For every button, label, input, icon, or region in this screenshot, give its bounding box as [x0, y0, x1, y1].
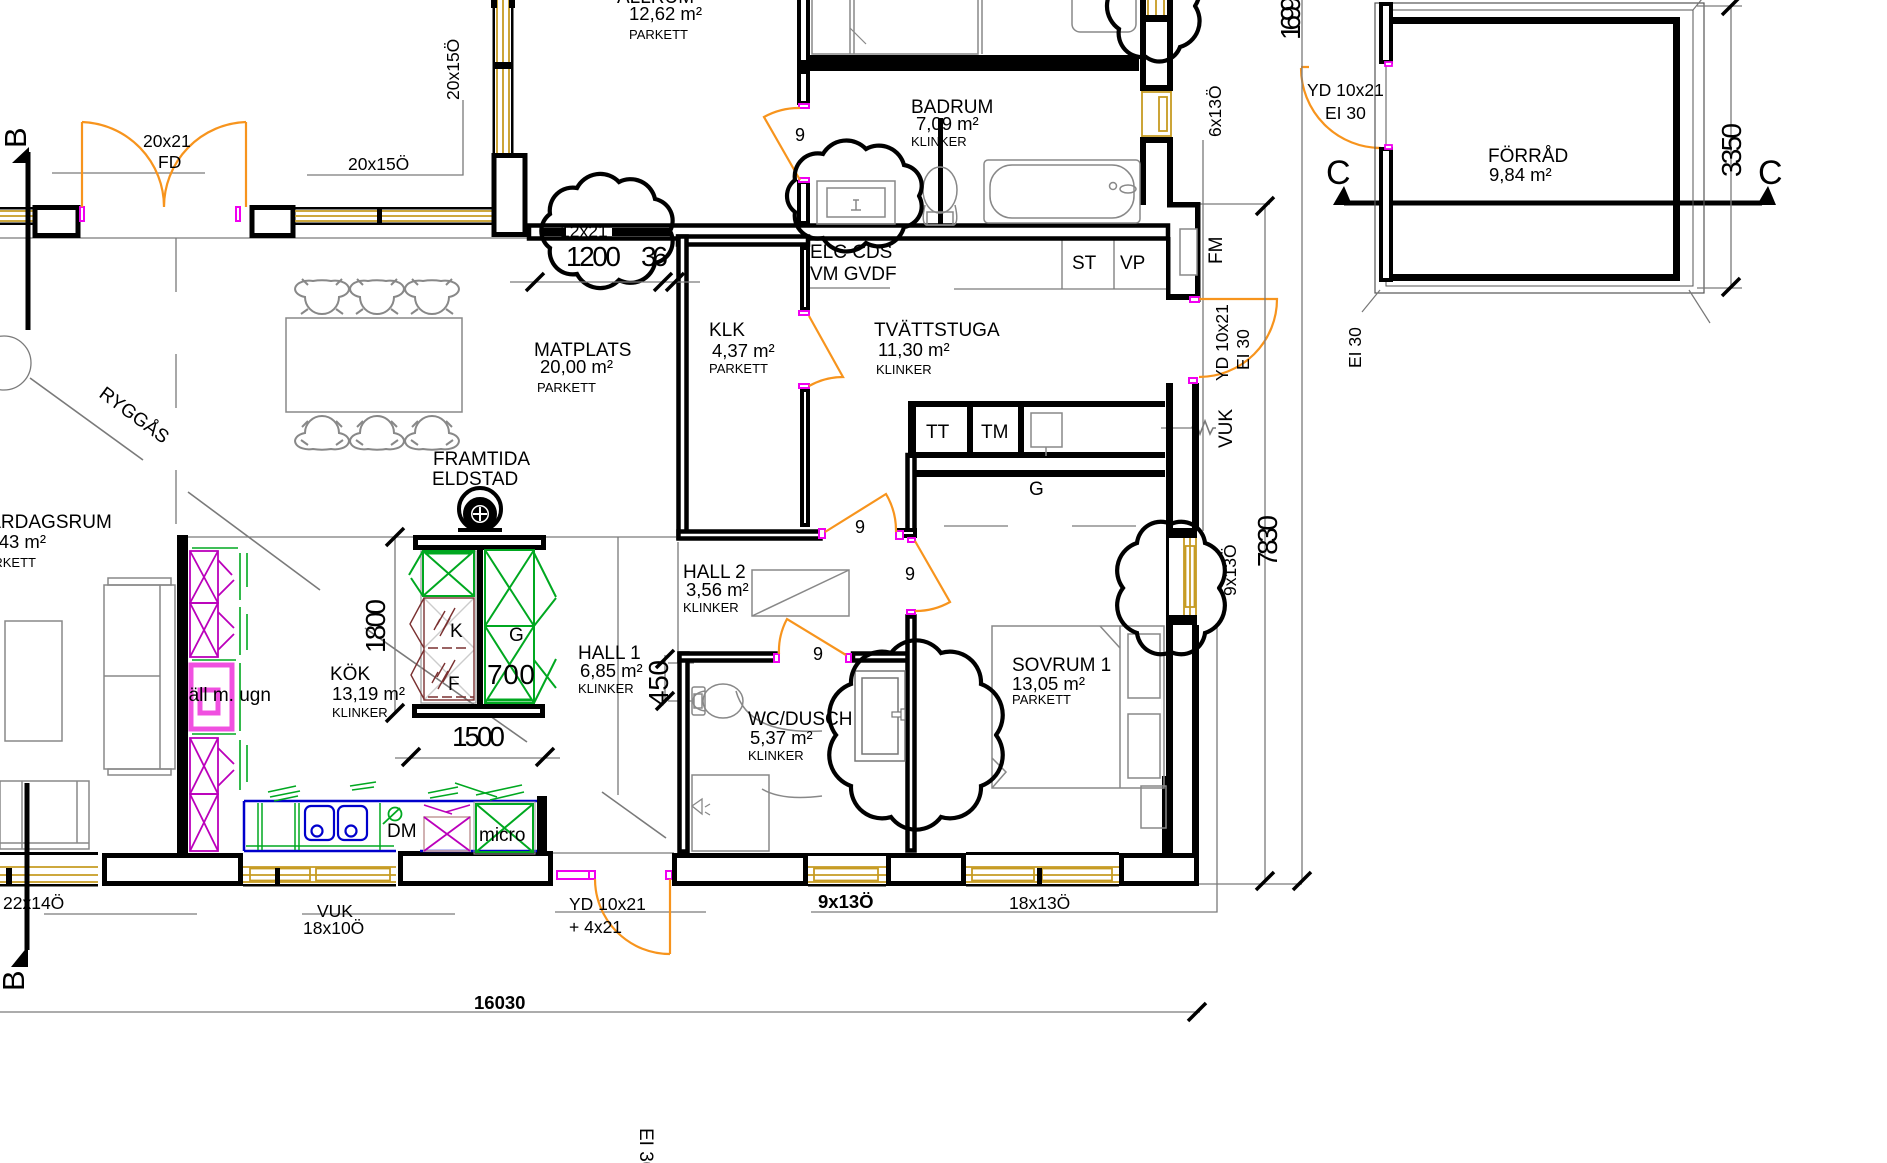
svg-text:11,30 m²: 11,30 m² [878, 339, 950, 360]
svg-text:PARKETT: PARKETT [629, 27, 688, 42]
svg-text:F: F [448, 674, 460, 695]
svg-text:EI 30: EI 30 [635, 1128, 656, 1163]
svg-text:KLINKER: KLINKER [578, 681, 634, 696]
svg-text:9,84 m²: 9,84 m² [1489, 164, 1552, 185]
svg-text:1699: 1699 [1275, 0, 1306, 40]
svg-text:YD 10x21: YD 10x21 [1307, 80, 1384, 100]
svg-text:700: 700 [487, 659, 535, 690]
svg-text:ELC CDS: ELC CDS [810, 242, 892, 263]
svg-text:5,37 m²: 5,37 m² [750, 727, 813, 748]
svg-text:häll m. ugn: häll m. ugn [178, 685, 271, 706]
svg-text:FD: FD [158, 152, 181, 172]
svg-text:G: G [509, 625, 524, 646]
svg-text:YD 10x21: YD 10x21 [569, 894, 646, 914]
svg-text:TM: TM [981, 422, 1008, 443]
svg-text:KÖK: KÖK [330, 664, 370, 685]
svg-text:20,00 m²: 20,00 m² [540, 356, 613, 377]
svg-text:9: 9 [855, 517, 865, 537]
svg-text:ELDSTAD: ELDSTAD [432, 469, 518, 490]
svg-text:+ 4x21: + 4x21 [569, 917, 622, 937]
svg-text:22x14Ö: 22x14Ö [3, 893, 64, 913]
svg-text:DM: DM [387, 821, 417, 842]
svg-text:20x21: 20x21 [143, 131, 191, 151]
svg-text:TT: TT [926, 422, 950, 443]
svg-text:KLINKER: KLINKER [683, 600, 739, 615]
svg-text:PARKETT: PARKETT [0, 555, 36, 570]
svg-text:18x13Ö: 18x13Ö [1009, 893, 1070, 913]
svg-text:1200: 1200 [566, 241, 621, 272]
svg-text:1800: 1800 [360, 599, 391, 653]
svg-text:20x15Ö: 20x15Ö [443, 39, 463, 100]
svg-text:EI 30: EI 30 [1345, 327, 1365, 368]
svg-text:20x15Ö: 20x15Ö [348, 154, 409, 174]
svg-text:ST: ST [1072, 253, 1097, 274]
svg-text:9x13Ö: 9x13Ö [1220, 544, 1240, 596]
svg-text:EI 30: EI 30 [1233, 329, 1253, 370]
svg-text:12x21: 12x21 [560, 221, 608, 241]
svg-text:FM: FM [1206, 237, 1227, 264]
svg-text:7,09 m²: 7,09 m² [916, 113, 979, 134]
svg-text:KLINKER: KLINKER [748, 748, 804, 763]
svg-text:3,56 m²: 3,56 m² [686, 579, 749, 600]
svg-text:4,37 m²: 4,37 m² [712, 340, 775, 361]
svg-text:PARKETT: PARKETT [537, 380, 596, 395]
svg-text:16030: 16030 [474, 992, 525, 1013]
svg-text:PARKETT: PARKETT [1012, 692, 1071, 707]
svg-text:YD 10x21: YD 10x21 [1212, 304, 1232, 381]
svg-text:VP: VP [1120, 253, 1145, 274]
svg-text:K: K [450, 621, 463, 642]
svg-text:9x13Ö: 9x13Ö [818, 891, 874, 912]
svg-text:VARDAGSRUM: VARDAGSRUM [0, 512, 112, 533]
svg-text:FRAMTIDA: FRAMTIDA [433, 449, 530, 470]
svg-text:PARKETT: PARKETT [709, 361, 768, 376]
svg-text:36: 36 [641, 241, 668, 272]
svg-text:C: C [1326, 154, 1351, 192]
svg-text:VUK: VUK [1216, 409, 1237, 448]
svg-text:17,43 m²: 17,43 m² [0, 531, 46, 552]
svg-text:B: B [0, 127, 33, 148]
svg-text:6,85 m²: 6,85 m² [580, 660, 643, 681]
svg-text:13,19 m²: 13,19 m² [332, 683, 405, 704]
svg-text:1500: 1500 [452, 721, 505, 752]
svg-text:KLINKER: KLINKER [911, 134, 967, 149]
svg-text:G: G [1029, 479, 1044, 500]
svg-text:C: C [1758, 154, 1783, 192]
svg-text:450: 450 [643, 660, 674, 706]
svg-text:13,05 m²: 13,05 m² [1012, 673, 1085, 694]
svg-text:VM GVDF: VM GVDF [810, 264, 897, 285]
svg-text:micro: micro [479, 825, 525, 846]
svg-text:9: 9 [813, 644, 823, 664]
svg-text:KLK: KLK [709, 320, 745, 341]
svg-text:9: 9 [905, 564, 915, 584]
svg-text:TVÄTTSTUGA: TVÄTTSTUGA [874, 320, 1000, 341]
svg-text:18x10Ö: 18x10Ö [303, 918, 364, 938]
svg-text:3350: 3350 [1716, 123, 1747, 177]
svg-text:6x13Ö: 6x13Ö [1205, 85, 1225, 137]
svg-text:7830: 7830 [1252, 515, 1283, 567]
svg-text:9: 9 [795, 125, 805, 145]
svg-text:12,62 m²: 12,62 m² [629, 3, 702, 24]
svg-text:KLINKER: KLINKER [332, 705, 388, 720]
svg-text:KLINKER: KLINKER [876, 362, 932, 377]
svg-text:EI 30: EI 30 [1325, 103, 1366, 123]
svg-text:B: B [0, 970, 31, 991]
